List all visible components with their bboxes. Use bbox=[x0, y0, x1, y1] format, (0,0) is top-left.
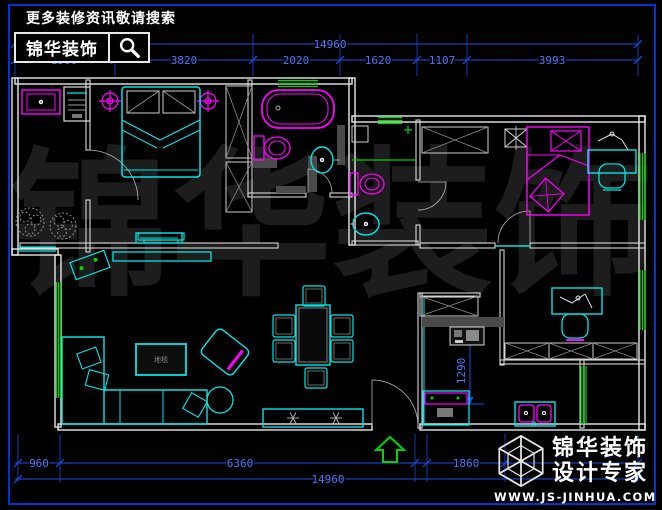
tv-cabinet bbox=[113, 233, 211, 261]
search-icon bbox=[108, 34, 148, 61]
footer-subtitle: 设计专家 bbox=[552, 461, 648, 486]
doormat bbox=[70, 250, 110, 279]
star-icon bbox=[287, 413, 299, 424]
bathtub bbox=[262, 90, 334, 128]
upper-cabinet bbox=[420, 296, 478, 316]
armchair bbox=[199, 327, 250, 377]
outer-walls bbox=[12, 78, 645, 430]
floor-plan-image: 锦 华 装 饰 14960 156 bbox=[0, 0, 662, 510]
dining-area bbox=[263, 286, 363, 427]
wardrobe bbox=[422, 127, 488, 153]
wardrobe bbox=[505, 343, 637, 359]
double-bed bbox=[122, 87, 200, 177]
coffee-table: 地毯 bbox=[136, 344, 186, 375]
dim-bottom-seg: 1860 bbox=[453, 457, 480, 470]
chair bbox=[562, 314, 588, 340]
dining-table bbox=[296, 305, 330, 365]
laundry-sink bbox=[22, 90, 60, 114]
footer-brand: 锦华装饰 bbox=[552, 436, 648, 461]
dim-kitchen-vertical: 1290 bbox=[455, 358, 468, 385]
dim-bottom-seg: 6360 bbox=[227, 457, 254, 470]
cube-logo-icon bbox=[494, 434, 548, 488]
balcony bbox=[16, 87, 90, 251]
dim-top-seg: 1620 bbox=[365, 54, 392, 67]
dim-bottom-total: 14960 bbox=[311, 473, 344, 486]
dim-bottom-seg: 960 bbox=[29, 457, 49, 470]
dim-top-seg: 2020 bbox=[283, 54, 310, 67]
brand-name: 锦华装饰 bbox=[16, 34, 108, 61]
dim-top-total: 14960 bbox=[313, 38, 346, 51]
kitchen bbox=[420, 296, 555, 426]
toilet-icon bbox=[254, 136, 290, 160]
desk bbox=[588, 150, 636, 173]
footer-website: WWW.JS-JINHUA.COM bbox=[494, 490, 656, 504]
search-banner: 更多装修资讯敬请搜索 锦华装饰 bbox=[14, 8, 176, 63]
chair bbox=[599, 164, 625, 190]
master-bedroom bbox=[99, 86, 252, 243]
footer-logo: 锦华装饰 设计专家 WWW.JS-JINHUA.COM bbox=[494, 434, 656, 504]
side-table bbox=[207, 387, 233, 413]
desk-lamp-icon bbox=[598, 132, 628, 150]
ceiling-lamp-icon bbox=[505, 126, 527, 150]
desk bbox=[552, 288, 602, 314]
kitchen-sink bbox=[515, 402, 555, 426]
banner-tagline: 更多装修资讯敬请搜索 bbox=[26, 8, 176, 28]
study bbox=[505, 288, 637, 359]
oven bbox=[450, 327, 484, 345]
desk-lamp-icon bbox=[560, 294, 592, 308]
entrance-arrow-icon bbox=[376, 437, 404, 462]
single-bed bbox=[527, 127, 589, 215]
star-icon bbox=[330, 413, 342, 424]
plant-icon bbox=[16, 208, 76, 239]
stove bbox=[423, 391, 469, 425]
brand-logo: 锦华装饰 bbox=[14, 32, 150, 63]
dim-top-seg: 1107 bbox=[429, 54, 456, 67]
living-room: 地毯 bbox=[62, 233, 251, 424]
ceiling-lamp-icon bbox=[99, 90, 121, 112]
dim-top-seg: 3993 bbox=[539, 54, 566, 67]
rug-label: 地毯 bbox=[154, 355, 168, 364]
bedroom-2 bbox=[422, 126, 636, 215]
